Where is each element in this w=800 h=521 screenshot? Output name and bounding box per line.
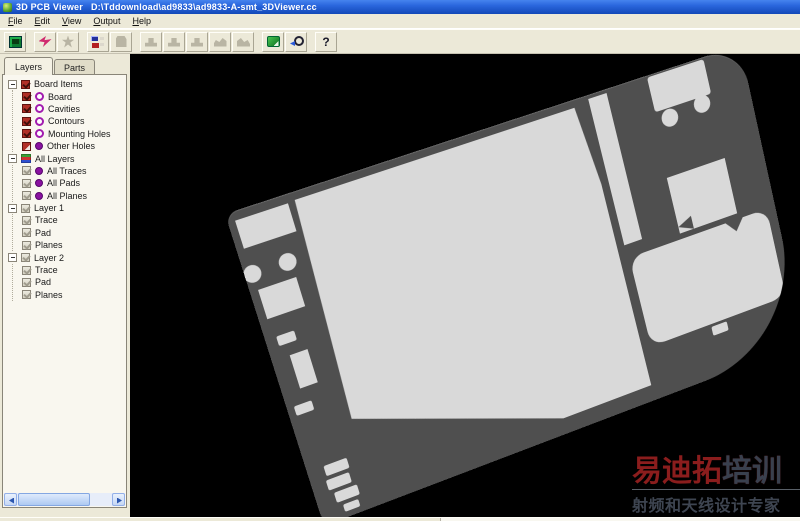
checkbox-checked-gray[interactable] [22, 241, 31, 250]
tree-node-all-traces[interactable]: All Traces [13, 165, 126, 177]
checkbox-checked-gray[interactable] [21, 253, 30, 262]
watermark-divider [632, 489, 800, 490]
tree-node-cavities[interactable]: Cavities [13, 103, 126, 115]
toolbar-separator [27, 30, 34, 53]
menu-output[interactable]: Output [87, 15, 126, 27]
tree-label[interactable]: Planes [35, 240, 63, 250]
flash-redraw-icon [39, 36, 52, 47]
document-path: D:\Tddownload\ad9833\ad9833-A-smt_3DView… [91, 2, 317, 12]
tree-label[interactable]: Planes [35, 290, 63, 300]
tree-label[interactable]: All Layers [35, 154, 75, 164]
status-strip [0, 517, 800, 521]
help-button[interactable]: ? [315, 32, 337, 52]
scroll-right-arrow[interactable] [112, 493, 125, 506]
connector-body [629, 209, 786, 347]
tree-label[interactable]: Mounting Holes [48, 129, 111, 139]
menu-edit[interactable]: Edit [29, 15, 57, 27]
menu-bar: File Edit View Output Help [0, 14, 800, 29]
tree-node-contours[interactable]: Contours [13, 115, 126, 127]
zoom-icon [289, 35, 303, 48]
push-button-2-disabled[interactable] [163, 32, 185, 52]
checkbox-checked-gray[interactable] [21, 204, 30, 213]
tree-node-layer1-planes[interactable]: Planes [13, 239, 126, 251]
push-button-3-disabled[interactable] [186, 32, 208, 52]
tree-node-layer1-pad[interactable]: Pad [13, 227, 126, 239]
tree-node-layer2-pad[interactable]: Pad [13, 276, 126, 288]
checkbox-checked-gray[interactable] [22, 166, 31, 175]
wave-icon [214, 37, 227, 47]
tree-label[interactable]: Pad [35, 228, 51, 238]
dot-icon [35, 179, 43, 187]
zoom-fit-button[interactable] [285, 32, 307, 52]
tree-label[interactable]: All Traces [47, 166, 87, 176]
app-title: 3D PCB Viewer [16, 2, 83, 12]
tree-node-board-items[interactable]: Board Items [3, 78, 126, 90]
watermark-brand: 易迪拓培训 [632, 456, 800, 488]
tab-layers[interactable]: Layers [4, 57, 53, 75]
tree-node-all-layers[interactable]: All Layers [3, 152, 126, 164]
tree-node-layer-2[interactable]: Layer 2 [3, 251, 126, 263]
wave-icon [237, 37, 250, 47]
sweep-button-disabled[interactable] [232, 32, 254, 52]
tree-label[interactable]: Board [48, 92, 72, 102]
tree-label[interactable]: All Planes [47, 191, 87, 201]
checkbox-checked-red[interactable] [22, 117, 31, 126]
watermark-brand-dark: 培训 [722, 455, 782, 488]
tree-label[interactable]: Layer 2 [34, 253, 64, 263]
tree-horizontal-scrollbar[interactable] [4, 493, 125, 506]
checkbox-partial-red[interactable] [22, 142, 31, 151]
menu-file[interactable]: File [2, 15, 29, 27]
push-button-4-disabled[interactable] [209, 32, 231, 52]
tree-label[interactable]: Other Holes [47, 141, 95, 151]
checkbox-checked-gray[interactable] [22, 216, 31, 225]
tree-group: Trace Pad Planes [12, 214, 126, 251]
sidebar-tabs: Layers Parts [0, 54, 130, 74]
watermark: 易迪拓培训 射频和天线设计专家 [632, 456, 800, 517]
layer-colors-icon [91, 36, 105, 48]
smd-pad [294, 400, 315, 416]
ring-icon [35, 92, 44, 101]
checkbox-checked-gray[interactable] [22, 179, 31, 188]
snapshot-icon [267, 36, 280, 47]
toolbar-separator [255, 30, 262, 53]
smd-pad [343, 499, 360, 512]
collapse-icon[interactable] [8, 80, 17, 89]
dot-icon [35, 167, 43, 175]
tree-node-layer-1[interactable]: Layer 1 [3, 202, 126, 214]
checkbox-checked-gray[interactable] [22, 290, 31, 299]
layer-stack-icon [21, 154, 31, 163]
board-view-button[interactable] [4, 32, 26, 52]
layers-tree: Board Items Board Cavities [2, 74, 127, 508]
ring-icon [35, 129, 44, 138]
collapse-icon[interactable] [8, 204, 17, 213]
mounting-hole [276, 250, 298, 273]
tree-label[interactable]: Trace [35, 215, 58, 225]
copper-block [258, 277, 305, 319]
checkbox-checked-red[interactable] [22, 129, 31, 138]
sidebar: Layers Parts Board Items Board [0, 54, 130, 517]
toolbar-separator [80, 30, 87, 53]
tree-group: Board Cavities Contours [12, 90, 126, 152]
watermark-slogan: 射频和天线设计专家 [632, 492, 800, 516]
tree-node-layer2-trace[interactable]: Trace [13, 264, 126, 276]
push-icon [191, 37, 203, 47]
window-title: 3D PCB ViewerD:\Tddownload\ad9833\ad9833… [16, 2, 325, 12]
push-icon [168, 37, 180, 47]
smd-pad [276, 330, 297, 346]
tab-parts[interactable]: Parts [54, 59, 95, 75]
layer-colors-button[interactable] [87, 32, 109, 52]
scrollbar-thumb[interactable] [18, 493, 90, 506]
tree-node-other-holes[interactable]: Other Holes [13, 140, 126, 152]
mounting-hole [240, 262, 263, 285]
help-icon: ? [322, 36, 329, 48]
tree-label[interactable]: All Pads [47, 178, 80, 188]
redraw-button[interactable] [34, 32, 56, 52]
tree-label[interactable]: Cavities [48, 104, 80, 114]
tree-label[interactable]: Contours [48, 116, 85, 126]
copper-plane [286, 105, 652, 490]
ring-icon [35, 104, 44, 113]
dot-icon [35, 192, 43, 200]
main-area: Layers Parts Board Items Board [0, 54, 800, 517]
export-button-disabled[interactable] [110, 32, 132, 52]
star-icon [62, 36, 74, 48]
checkbox-checked-gray[interactable] [22, 266, 31, 275]
toolbar-separator [308, 30, 315, 53]
component-footprint [290, 349, 318, 389]
tree-label[interactable]: Pad [35, 277, 51, 287]
menu-view[interactable]: View [56, 15, 87, 27]
watermark-brand-red: 易迪拓 [632, 455, 722, 488]
menu-help[interactable]: Help [126, 15, 157, 27]
toolbar-separator [133, 30, 140, 53]
tree-group: All Traces All Pads All Planes [12, 165, 126, 202]
tree-node-all-planes[interactable]: All Planes [13, 190, 126, 202]
tree-node-mounting-holes[interactable]: Mounting Holes [13, 128, 126, 140]
dot-icon [35, 142, 43, 150]
options-button-disabled[interactable] [57, 32, 79, 52]
checkbox-checked-gray[interactable] [22, 228, 31, 237]
tree-node-layer2-planes[interactable]: Planes [13, 289, 126, 301]
checkbox-checked-red[interactable] [22, 92, 31, 101]
tree-node-all-pads[interactable]: All Pads [13, 177, 126, 189]
toolbar: ? [0, 29, 800, 54]
checkbox-checked-red[interactable] [21, 80, 30, 89]
snapshot-button[interactable] [262, 32, 284, 52]
ring-icon [35, 117, 44, 126]
scroll-left-arrow[interactable] [4, 493, 17, 506]
title-bar: 3D PCB ViewerD:\Tddownload\ad9833\ad9833… [0, 0, 800, 14]
pcb-board [225, 54, 800, 517]
checkbox-checked-red[interactable] [22, 104, 31, 113]
collapse-icon[interactable] [8, 154, 17, 163]
collapse-icon[interactable] [8, 253, 17, 262]
tree-label[interactable]: Board Items [34, 79, 83, 89]
checkbox-checked-gray[interactable] [22, 278, 31, 287]
tree-node-board[interactable]: Board [13, 90, 126, 102]
copper-block [235, 203, 296, 248]
mounting-hole [660, 106, 680, 129]
tree-label[interactable]: Layer 1 [34, 203, 64, 213]
tree-group: Trace Pad Planes [12, 264, 126, 301]
smd-pad [711, 321, 728, 336]
tree-label[interactable]: Trace [35, 265, 58, 275]
board-view-icon [9, 36, 22, 48]
push-icon [145, 37, 157, 47]
container-icon [116, 36, 127, 47]
pcb-3d-viewport[interactable]: 易迪拓培训 射频和天线设计专家 [130, 54, 800, 517]
tree-node-layer1-trace[interactable]: Trace [13, 214, 126, 226]
app-window: 3D PCB ViewerD:\Tddownload\ad9833\ad9833… [0, 0, 800, 521]
push-button-1-disabled[interactable] [140, 32, 162, 52]
checkbox-checked-gray[interactable] [22, 191, 31, 200]
app-icon [3, 3, 12, 12]
